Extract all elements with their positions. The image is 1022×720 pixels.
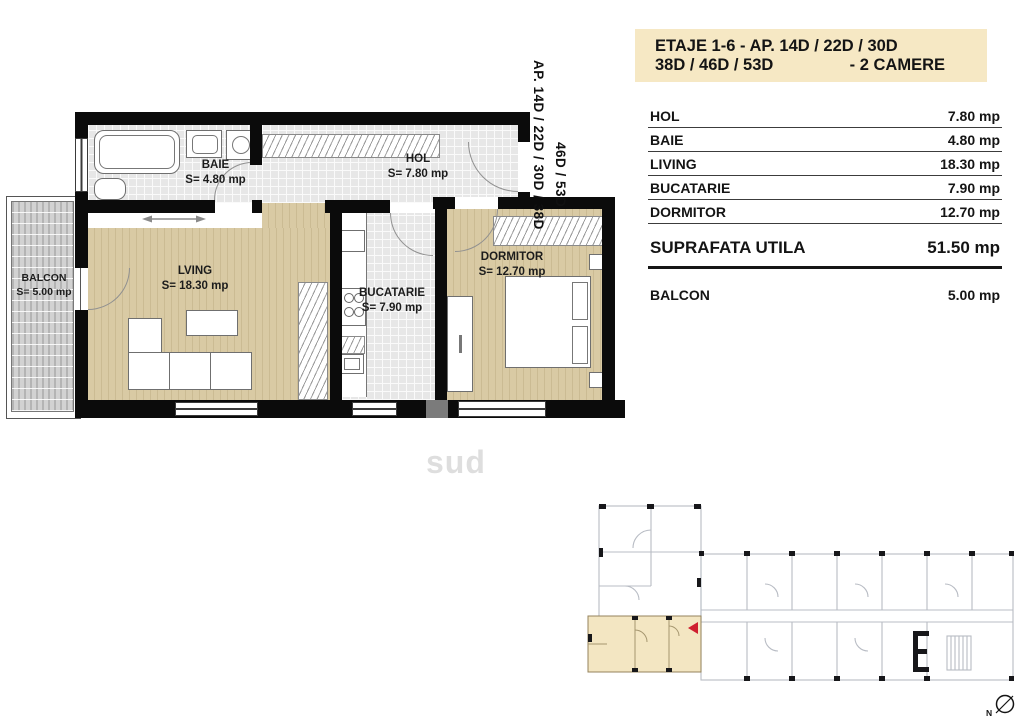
wall-segment [75, 112, 530, 125]
room-label-bathroom: BAIE S= 4.80 mp [168, 158, 263, 188]
pillow [572, 326, 588, 364]
table-row: BUCATARIE 7.90 mp [648, 176, 1002, 200]
title-line2: 38D / 46D / 53D - 2 CAMERE [655, 56, 945, 75]
area-table: HOL 7.80 mp BAIE 4.80 mp LIVING 18.30 mp… [648, 104, 1002, 224]
balcony-area-row: BALCON 5.00 mp [648, 287, 1002, 303]
sofa [128, 352, 252, 390]
room-label-balcony: BALCON S= 5.00 mp [12, 272, 76, 299]
wall-segment [435, 209, 447, 400]
total-area-label: SUPRAFATA UTILA [650, 238, 806, 258]
row-value: 12.70 mp [940, 204, 1000, 220]
room-area: S= 5.00 mp [12, 286, 76, 300]
nightstand [589, 372, 603, 388]
room-area: S= 7.80 mp [378, 167, 458, 182]
table-row: HOL 7.80 mp [648, 104, 1002, 128]
key-plan: N [585, 498, 1022, 720]
room-area: S= 7.90 mp [350, 301, 434, 316]
total-area-row: SUPRAFATA UTILA 51.50 mp [648, 238, 1002, 269]
key-plan-highlighted-unit [588, 616, 701, 672]
fridge [340, 354, 364, 374]
bed [505, 276, 591, 368]
sliding-door-symbol [142, 214, 206, 224]
wall-segment [518, 112, 530, 142]
row-value: 18.30 mp [940, 156, 1000, 172]
title-box: ETAJE 1-6 - AP. 14D / 22D / 30D 38D / 46… [635, 29, 987, 82]
row-label: DORMITOR [650, 204, 726, 220]
room-label-hall: HOL S= 7.80 mp [378, 152, 458, 182]
room-area: S= 12.70 mp [462, 265, 562, 280]
balcony-value: 5.00 mp [948, 287, 1000, 303]
row-label: LIVING [650, 156, 697, 172]
sink-basin [192, 135, 218, 154]
watermark: sud [426, 444, 486, 481]
fridge-inner [344, 358, 360, 370]
wall-segment [88, 200, 215, 213]
balcony-label: BALCON [650, 287, 710, 303]
room-name: BALCON [12, 272, 76, 286]
floor-plan-sheet: BALCON S= 5.00 mp BAIE S= 4.80 mp HOL S=… [0, 0, 1022, 720]
bedroom-wardrobe [493, 216, 605, 246]
kitchen-vent [341, 336, 365, 354]
room-label-kitchen: BUCATARIE S= 7.90 mp [350, 286, 434, 316]
room-name: HOL [378, 152, 458, 167]
room-name: DORMITOR [462, 250, 562, 265]
room-name: BAIE [168, 158, 263, 173]
bedroom-window [458, 401, 546, 417]
title-line2-right: - 2 CAMERE [850, 56, 945, 75]
toilet [94, 178, 126, 200]
room-name: LVING [150, 264, 240, 279]
balcony-floor [11, 201, 74, 412]
row-label: HOL [650, 108, 680, 124]
wall-segment [75, 310, 88, 418]
washer-drum [232, 136, 250, 154]
room-area: S= 4.80 mp [168, 173, 263, 188]
bathtub-inner [99, 135, 175, 169]
room-area: S= 18.30 mp [150, 279, 240, 294]
living-corridor-floor [262, 203, 330, 228]
table-row: DORMITOR 12.70 mp [648, 200, 1002, 224]
compass-icon: N [986, 696, 1014, 719]
title-line1: ETAJE 1-6 - AP. 14D / 22D / 30D [655, 37, 945, 56]
row-label: BAIE [650, 132, 683, 148]
compass-label: N [986, 708, 992, 718]
bedroom-door-opening [455, 197, 498, 209]
shaft-block [426, 400, 448, 418]
total-area-value: 51.50 mp [927, 238, 1000, 258]
room-name: BUCATARIE [350, 286, 434, 301]
pillow [572, 282, 588, 320]
bathroom-window [75, 138, 88, 192]
title-line2-left: 38D / 46D / 53D [655, 56, 773, 75]
row-value: 7.90 mp [948, 180, 1000, 196]
tv-cabinet [298, 282, 328, 400]
bedroom-cabinet [447, 296, 473, 392]
wall-segment [325, 200, 390, 213]
side-apartment-label-2: 46D / 53D [553, 142, 568, 207]
table-row: LIVING 18.30 mp [648, 152, 1002, 176]
wall-segment [602, 209, 615, 400]
room-label-living: LVING S= 18.30 mp [150, 264, 240, 294]
wall-segment [252, 200, 262, 213]
bathroom-sink [186, 130, 222, 158]
table-row: BAIE 4.80 mp [648, 128, 1002, 152]
kitchen-window [352, 402, 397, 416]
row-value: 4.80 mp [948, 132, 1000, 148]
nightstand [589, 254, 603, 270]
wall-segment [433, 197, 455, 209]
kitchen-sink [341, 230, 365, 252]
room-label-bedroom: DORMITOR S= 12.70 mp [462, 250, 562, 280]
cabinet-handle [459, 335, 462, 353]
living-window [175, 402, 258, 416]
wall-segment [330, 213, 342, 400]
side-apartment-label: AP. 14D / 22D / 30D / 38D [531, 60, 546, 230]
row-value: 7.80 mp [948, 108, 1000, 124]
coffee-table [186, 310, 238, 336]
row-label: BUCATARIE [650, 180, 730, 196]
